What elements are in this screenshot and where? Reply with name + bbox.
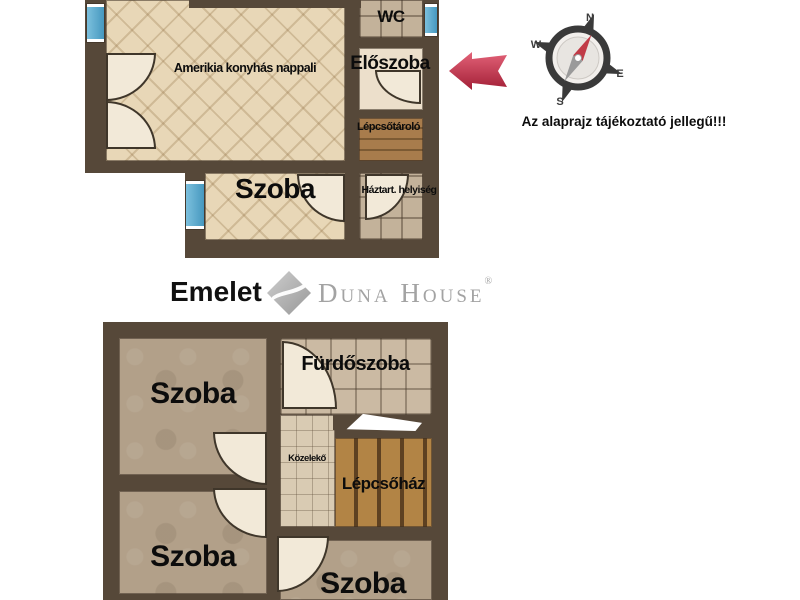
window-icon <box>425 4 437 36</box>
compass-w-label: W <box>531 39 542 51</box>
logo-reg-mark: ® <box>485 276 493 287</box>
wall-top <box>189 0 361 8</box>
wall-left <box>103 322 119 594</box>
window-icon <box>186 181 204 229</box>
room-label-szoba-bottomleft: Szoba <box>123 541 263 573</box>
dunahouse-logo: Duna House ® <box>266 270 492 316</box>
room-label-living: Amerikia konyhás nappali <box>140 62 350 75</box>
disclaimer-text: Az alaprajz tájékoztató jellegű!!! <box>498 114 750 129</box>
compass-s-label: S <box>556 96 563 108</box>
wall-bottom <box>185 240 439 258</box>
ground-floor-plan: Amerikia konyhás nappali WC Előszoba Lép… <box>85 0 441 258</box>
floorplan-page: Amerikia konyhás nappali WC Előszoba Lép… <box>0 0 800 600</box>
window-icon <box>87 4 104 42</box>
wall-right <box>432 322 448 600</box>
room-label-szoba-bottomcenter: Szoba <box>293 568 433 600</box>
room-label-szoba-ground: Szoba <box>213 174 337 203</box>
compass-rose-icon: N E S W <box>526 6 630 110</box>
room-label-utility: Háztart. helyiség <box>343 185 455 196</box>
room-label-wc: WC <box>359 8 423 26</box>
upper-floor-plan: Szoba Fürdőszoba Közelekő Lépcsőház Szob… <box>103 322 448 600</box>
floor-section-title: Emelet <box>170 276 262 308</box>
arrow-svg <box>449 52 507 90</box>
direction-arrow-icon <box>449 52 507 90</box>
wall-mid-vertical <box>345 0 359 240</box>
wall-wc-bottom <box>345 38 425 48</box>
room-label-corridor: Közelekő <box>277 454 337 464</box>
room-label-bathroom: Fürdőszoba <box>283 354 428 375</box>
compass-e-label: E <box>616 68 623 80</box>
room-corridor <box>280 415 335 527</box>
wall-bottom-left <box>103 594 267 600</box>
room-label-stair-storage: Lépcsőtároló <box>341 122 436 134</box>
logo-diamond-icon <box>266 270 312 316</box>
wall-hall-bottom <box>345 110 423 118</box>
room-label-staircase: Lépcsőház <box>335 475 432 493</box>
wall-stairs-top <box>335 430 432 438</box>
wall-living-bottom <box>85 161 423 173</box>
logo-text: Duna House <box>318 270 485 316</box>
wall-top <box>103 322 448 338</box>
compass-svg: N E S W <box>526 6 630 110</box>
compass-n-label: N <box>586 12 594 24</box>
room-label-szoba-topleft: Szoba <box>123 378 263 410</box>
room-label-hall: Előszoba <box>335 54 445 74</box>
